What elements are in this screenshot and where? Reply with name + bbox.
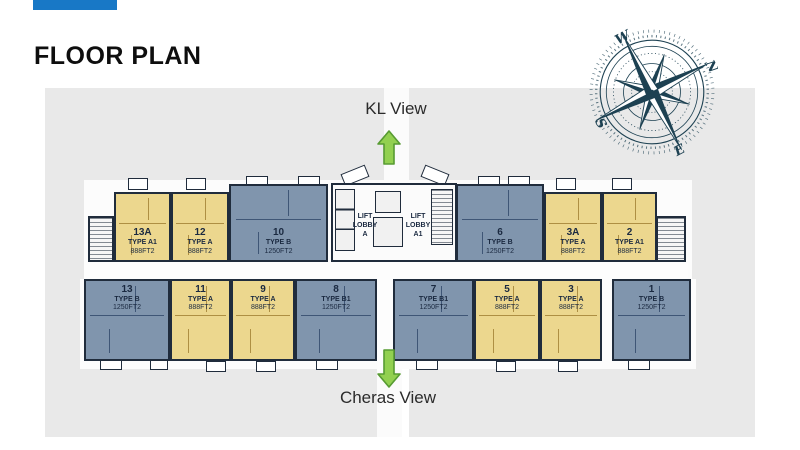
unit-size: 888FT2 — [546, 248, 600, 256]
unit-number: 8 — [297, 284, 375, 296]
lift-shaft-icon — [375, 191, 401, 213]
unit-number: 5 — [476, 284, 538, 296]
unit-label: 3TYPE A888FT2 — [542, 284, 600, 313]
interior-wall-line — [90, 315, 164, 316]
unit-label: 12TYPE A888FT2 — [173, 227, 227, 256]
lift-lobby: LIFTLOBBYA LIFTLOBBYA1 — [331, 183, 457, 262]
unit-label: 13TYPE B1250FT2 — [86, 284, 168, 313]
balcony-ledge — [128, 178, 148, 190]
unit-number: 9 — [233, 284, 293, 296]
unit-label: 11TYPE A888FT2 — [172, 284, 229, 313]
unit-type: TYPE B1 — [395, 296, 472, 304]
unit-5: 5TYPE A888FT2 — [474, 279, 540, 361]
interior-wall-line — [236, 315, 290, 316]
unit-size: 888FT2 — [476, 304, 538, 312]
unit-type: TYPE B — [458, 239, 542, 247]
cheras-view-arrow-icon — [376, 348, 402, 389]
interior-wall-line — [607, 223, 653, 224]
interior-wall-line — [319, 329, 320, 352]
unit-size: 1250FT2 — [458, 248, 542, 256]
unit-size: 888FT2 — [542, 304, 600, 312]
interior-wall-line — [188, 329, 189, 352]
interior-wall-line — [558, 329, 559, 352]
unit-size: 1250FT2 — [614, 304, 689, 312]
unit-number: 13A — [116, 227, 169, 239]
unit-number: 3 — [542, 284, 600, 296]
unit-type: TYPE A1 — [604, 239, 655, 247]
unit-12: 12TYPE A888FT2 — [171, 192, 229, 262]
stairwell-right — [656, 216, 686, 262]
unit-type: TYPE A — [542, 296, 600, 304]
unit-number: 6 — [458, 227, 542, 239]
unit-label: 10TYPE B1250FT2 — [231, 227, 326, 256]
interior-wall-line — [399, 315, 468, 316]
unit-11: 11TYPE A888FT2 — [170, 279, 231, 361]
balcony-ledge — [206, 361, 226, 372]
unit-label: 6TYPE B1250FT2 — [458, 227, 542, 256]
interior-wall-line — [109, 329, 110, 352]
unit-label: 1TYPE B1250FT2 — [614, 284, 689, 313]
unit-size: 888FT2 — [173, 248, 227, 256]
slide: { "slide": { "title": "FLOOR PLAN" }, "v… — [0, 0, 800, 450]
unit-8: 8TYPE B11250FT2 — [295, 279, 377, 361]
unit-label: 2TYPE A1888FT2 — [604, 227, 655, 256]
interior-wall-line — [301, 315, 371, 316]
unit-number: 10 — [231, 227, 326, 239]
unit-9: 9TYPE A888FT2 — [231, 279, 295, 361]
unit-number: 2 — [604, 227, 655, 239]
unit-3: 3TYPE A888FT2 — [540, 279, 602, 361]
unit-type: TYPE B — [231, 239, 326, 247]
unit-1: 1TYPE B1250FT2 — [612, 279, 691, 361]
interior-wall-line — [508, 190, 509, 215]
unit-3A: 3ATYPE A888FT2 — [544, 192, 602, 262]
interior-wall-line — [176, 223, 225, 224]
unit-label: 13ATYPE A1888FT2 — [116, 227, 169, 256]
unit-size: 888FT2 — [604, 248, 655, 256]
interior-wall-line — [250, 329, 251, 352]
interior-wall-line — [479, 315, 535, 316]
unit-label: 8TYPE B11250FT2 — [297, 284, 375, 313]
interior-wall-line — [205, 198, 206, 220]
unit-type: TYPE A — [173, 239, 227, 247]
balcony-ledge — [558, 361, 578, 372]
interior-wall-line — [236, 219, 322, 220]
interior-wall-line — [635, 198, 636, 220]
interior-wall-line — [578, 198, 579, 220]
unit-size: 888FT2 — [172, 304, 229, 312]
interior-wall-line — [148, 198, 149, 220]
balcony-ledge — [556, 178, 576, 190]
corridor — [84, 262, 688, 279]
unit-label: 3ATYPE A888FT2 — [546, 227, 600, 256]
unit-size: 888FT2 — [233, 304, 293, 312]
unit-number: 3A — [546, 227, 600, 239]
stairwell-left — [88, 216, 114, 262]
unit-size: 1250FT2 — [297, 304, 375, 312]
balcony-ledge — [496, 361, 516, 372]
interior-wall-line — [119, 223, 167, 224]
interior-wall-line — [545, 315, 597, 316]
interior-wall-line — [635, 329, 636, 352]
cheras-view-label: Cheras View — [318, 388, 458, 408]
balcony-ledge — [186, 178, 206, 190]
unit-number: 13 — [86, 284, 168, 296]
unit-size: 1250FT2 — [86, 304, 168, 312]
unit-type: TYPE A — [233, 296, 293, 304]
unit-label: 7TYPE B11250FT2 — [395, 284, 472, 313]
balcony-ledge — [256, 361, 276, 372]
lift-lobby-a-label: LIFTLOBBYA — [350, 213, 380, 239]
interior-wall-line — [175, 315, 226, 316]
unit-label: 5TYPE A888FT2 — [476, 284, 538, 313]
unit-10: 10TYPE B1250FT2 — [229, 184, 328, 262]
unit-size: 1250FT2 — [395, 304, 472, 312]
unit-size: 888FT2 — [116, 248, 169, 256]
unit-number: 1 — [614, 284, 689, 296]
balcony-ledge — [612, 178, 632, 190]
unit-6: 6TYPE B1250FT2 — [456, 184, 544, 262]
unit-13: 13TYPE B1250FT2 — [84, 279, 170, 361]
unit-type: TYPE A — [546, 239, 600, 247]
unit-number: 7 — [395, 284, 472, 296]
unit-type: TYPE A1 — [116, 239, 169, 247]
unit-type: TYPE B1 — [297, 296, 375, 304]
unit-number: 12 — [173, 227, 227, 239]
unit-type: TYPE B — [614, 296, 689, 304]
unit-type: TYPE A — [476, 296, 538, 304]
interior-wall-line — [417, 329, 418, 352]
interior-wall-line — [493, 329, 494, 352]
lift-lobby-a1-label: LIFTLOBBYA1 — [403, 213, 433, 239]
interior-wall-line — [462, 219, 538, 220]
unit-type: TYPE A — [172, 296, 229, 304]
unit-type: TYPE B — [86, 296, 168, 304]
interior-wall-line — [549, 223, 598, 224]
unit-2: 2TYPE A1888FT2 — [602, 192, 657, 262]
unit-7: 7TYPE B11250FT2 — [393, 279, 474, 361]
interior-wall-line — [618, 315, 686, 316]
unit-label: 9TYPE A888FT2 — [233, 284, 293, 313]
interior-wall-line — [288, 190, 289, 215]
unit-13A: 13ATYPE A1888FT2 — [114, 192, 171, 262]
lobby-stair-icon — [431, 189, 453, 245]
unit-number: 11 — [172, 284, 229, 296]
unit-size: 1250FT2 — [231, 248, 326, 256]
